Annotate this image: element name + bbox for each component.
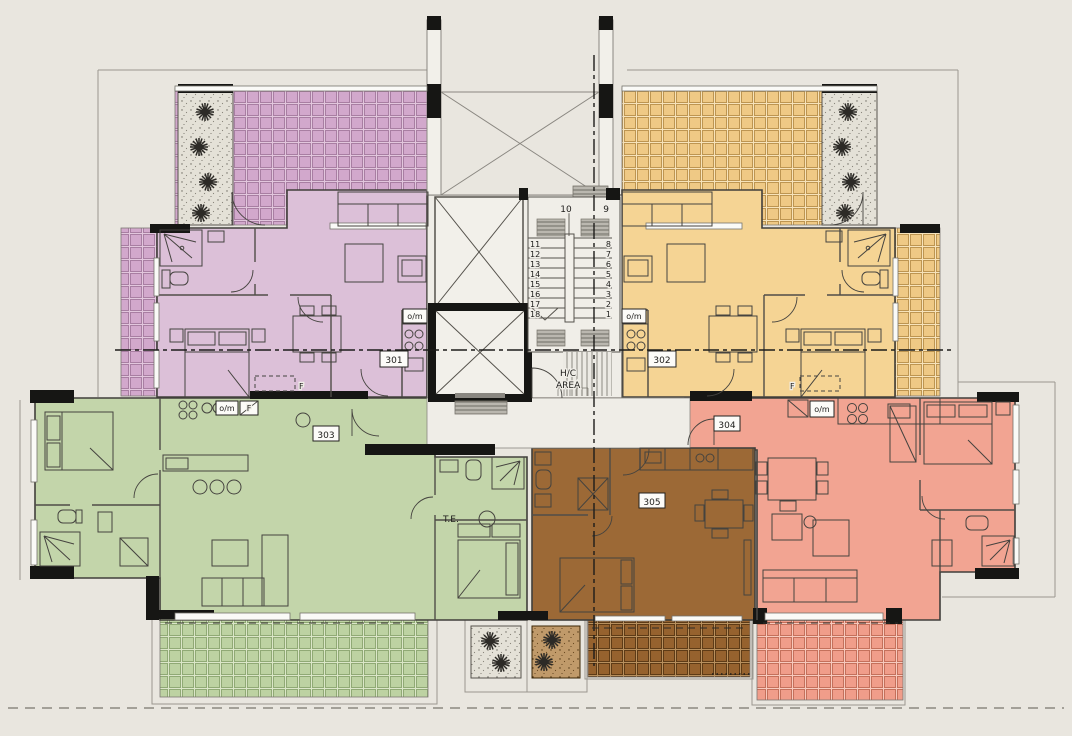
om-label-304: o/m [814, 405, 830, 414]
floor-plan-page: 301 302 303 304 305 10 9 11 12 13 14 15 … [0, 0, 1072, 736]
hc-area-label-line1: H/C [560, 369, 576, 379]
balcony-301-side [121, 228, 157, 396]
elevator-vent-grille [455, 401, 507, 414]
hc-area-label-line2: AREA [556, 381, 581, 391]
stair-number: 7 [606, 250, 611, 259]
stair-landing-mat [537, 219, 565, 236]
unit-302-label: 302 [653, 356, 670, 366]
balcony-302-side [895, 228, 940, 396]
fridge-label-302: F [790, 382, 795, 391]
stair-landing-mat [581, 219, 609, 236]
unit-303-label: 303 [317, 431, 334, 441]
stair-number: 6 [606, 260, 611, 269]
om-label-301: o/m [407, 312, 423, 321]
stair-number: 15 [530, 280, 540, 289]
om-label-302: o/m [626, 312, 642, 321]
balcony-303 [160, 620, 428, 697]
stair-number: 9 [603, 205, 609, 215]
unit-304-label: 304 [718, 421, 735, 431]
stair-landing-mat [537, 330, 565, 346]
stair-number: 4 [606, 280, 611, 289]
stair-stringer [565, 234, 574, 322]
shaft-vent-grille [573, 186, 608, 198]
stair-number: 1 [606, 310, 611, 319]
fridge-label-301: F [299, 382, 304, 391]
unit-305-area [532, 448, 755, 620]
stair-number: 8 [606, 240, 611, 249]
stair-number: 11 [530, 240, 540, 249]
unit-305-label: 305 [643, 498, 660, 508]
unit-301-label: 301 [385, 356, 402, 366]
balcony-304 [757, 620, 903, 700]
stair-number: 13 [530, 260, 540, 269]
stair-number: 12 [530, 250, 540, 259]
om-label-303: o/m [219, 404, 235, 413]
fridge-label-303: F [247, 404, 252, 413]
stair-number: 14 [530, 270, 540, 279]
elevator-shaft [432, 307, 528, 398]
planter-301 [178, 92, 233, 225]
stair-number: 17 [530, 300, 540, 309]
planter-302 [822, 92, 877, 225]
shaft-upper [435, 197, 523, 307]
stair-landing-mat [581, 330, 609, 346]
stair-number: 2 [606, 300, 611, 309]
stair-number: 16 [530, 290, 540, 299]
light-well [441, 92, 599, 195]
stair-number: 3 [606, 290, 611, 299]
stair-number: 10 [560, 205, 572, 215]
floor-plan-drawing: 301 302 303 304 305 10 9 11 12 13 14 15 … [0, 0, 1072, 736]
te-label: T.E. [442, 515, 459, 525]
stair-number: 18 [530, 310, 540, 319]
stair-number: 5 [606, 270, 611, 279]
